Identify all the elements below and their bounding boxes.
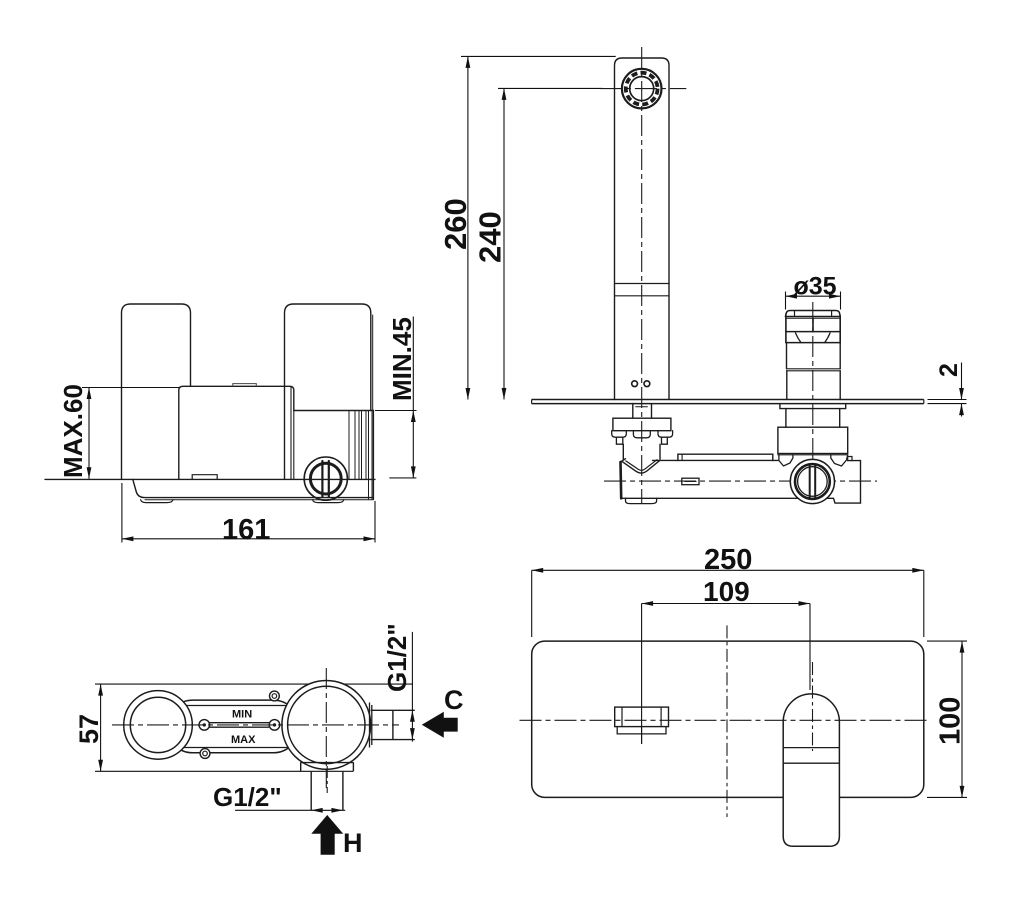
svg-text:G1/2": G1/2" xyxy=(382,623,412,692)
svg-text:G1/2": G1/2" xyxy=(213,782,282,812)
svg-text:H: H xyxy=(343,828,363,858)
svg-text:240: 240 xyxy=(473,211,508,263)
svg-text:MIN: MIN xyxy=(232,709,252,721)
svg-text:161: 161 xyxy=(222,514,270,546)
svg-text:109: 109 xyxy=(703,576,750,607)
svg-text:MIN.45: MIN.45 xyxy=(387,317,417,401)
svg-text:MAX: MAX xyxy=(231,734,256,746)
svg-text:100: 100 xyxy=(935,697,967,745)
svg-text:250: 250 xyxy=(704,544,752,576)
svg-text:260: 260 xyxy=(438,198,473,250)
svg-text:2: 2 xyxy=(935,363,963,377)
svg-text:MAX.60: MAX.60 xyxy=(58,384,88,478)
svg-text:ø35: ø35 xyxy=(794,273,837,301)
svg-text:C: C xyxy=(444,685,464,715)
svg-text:57: 57 xyxy=(74,714,104,744)
